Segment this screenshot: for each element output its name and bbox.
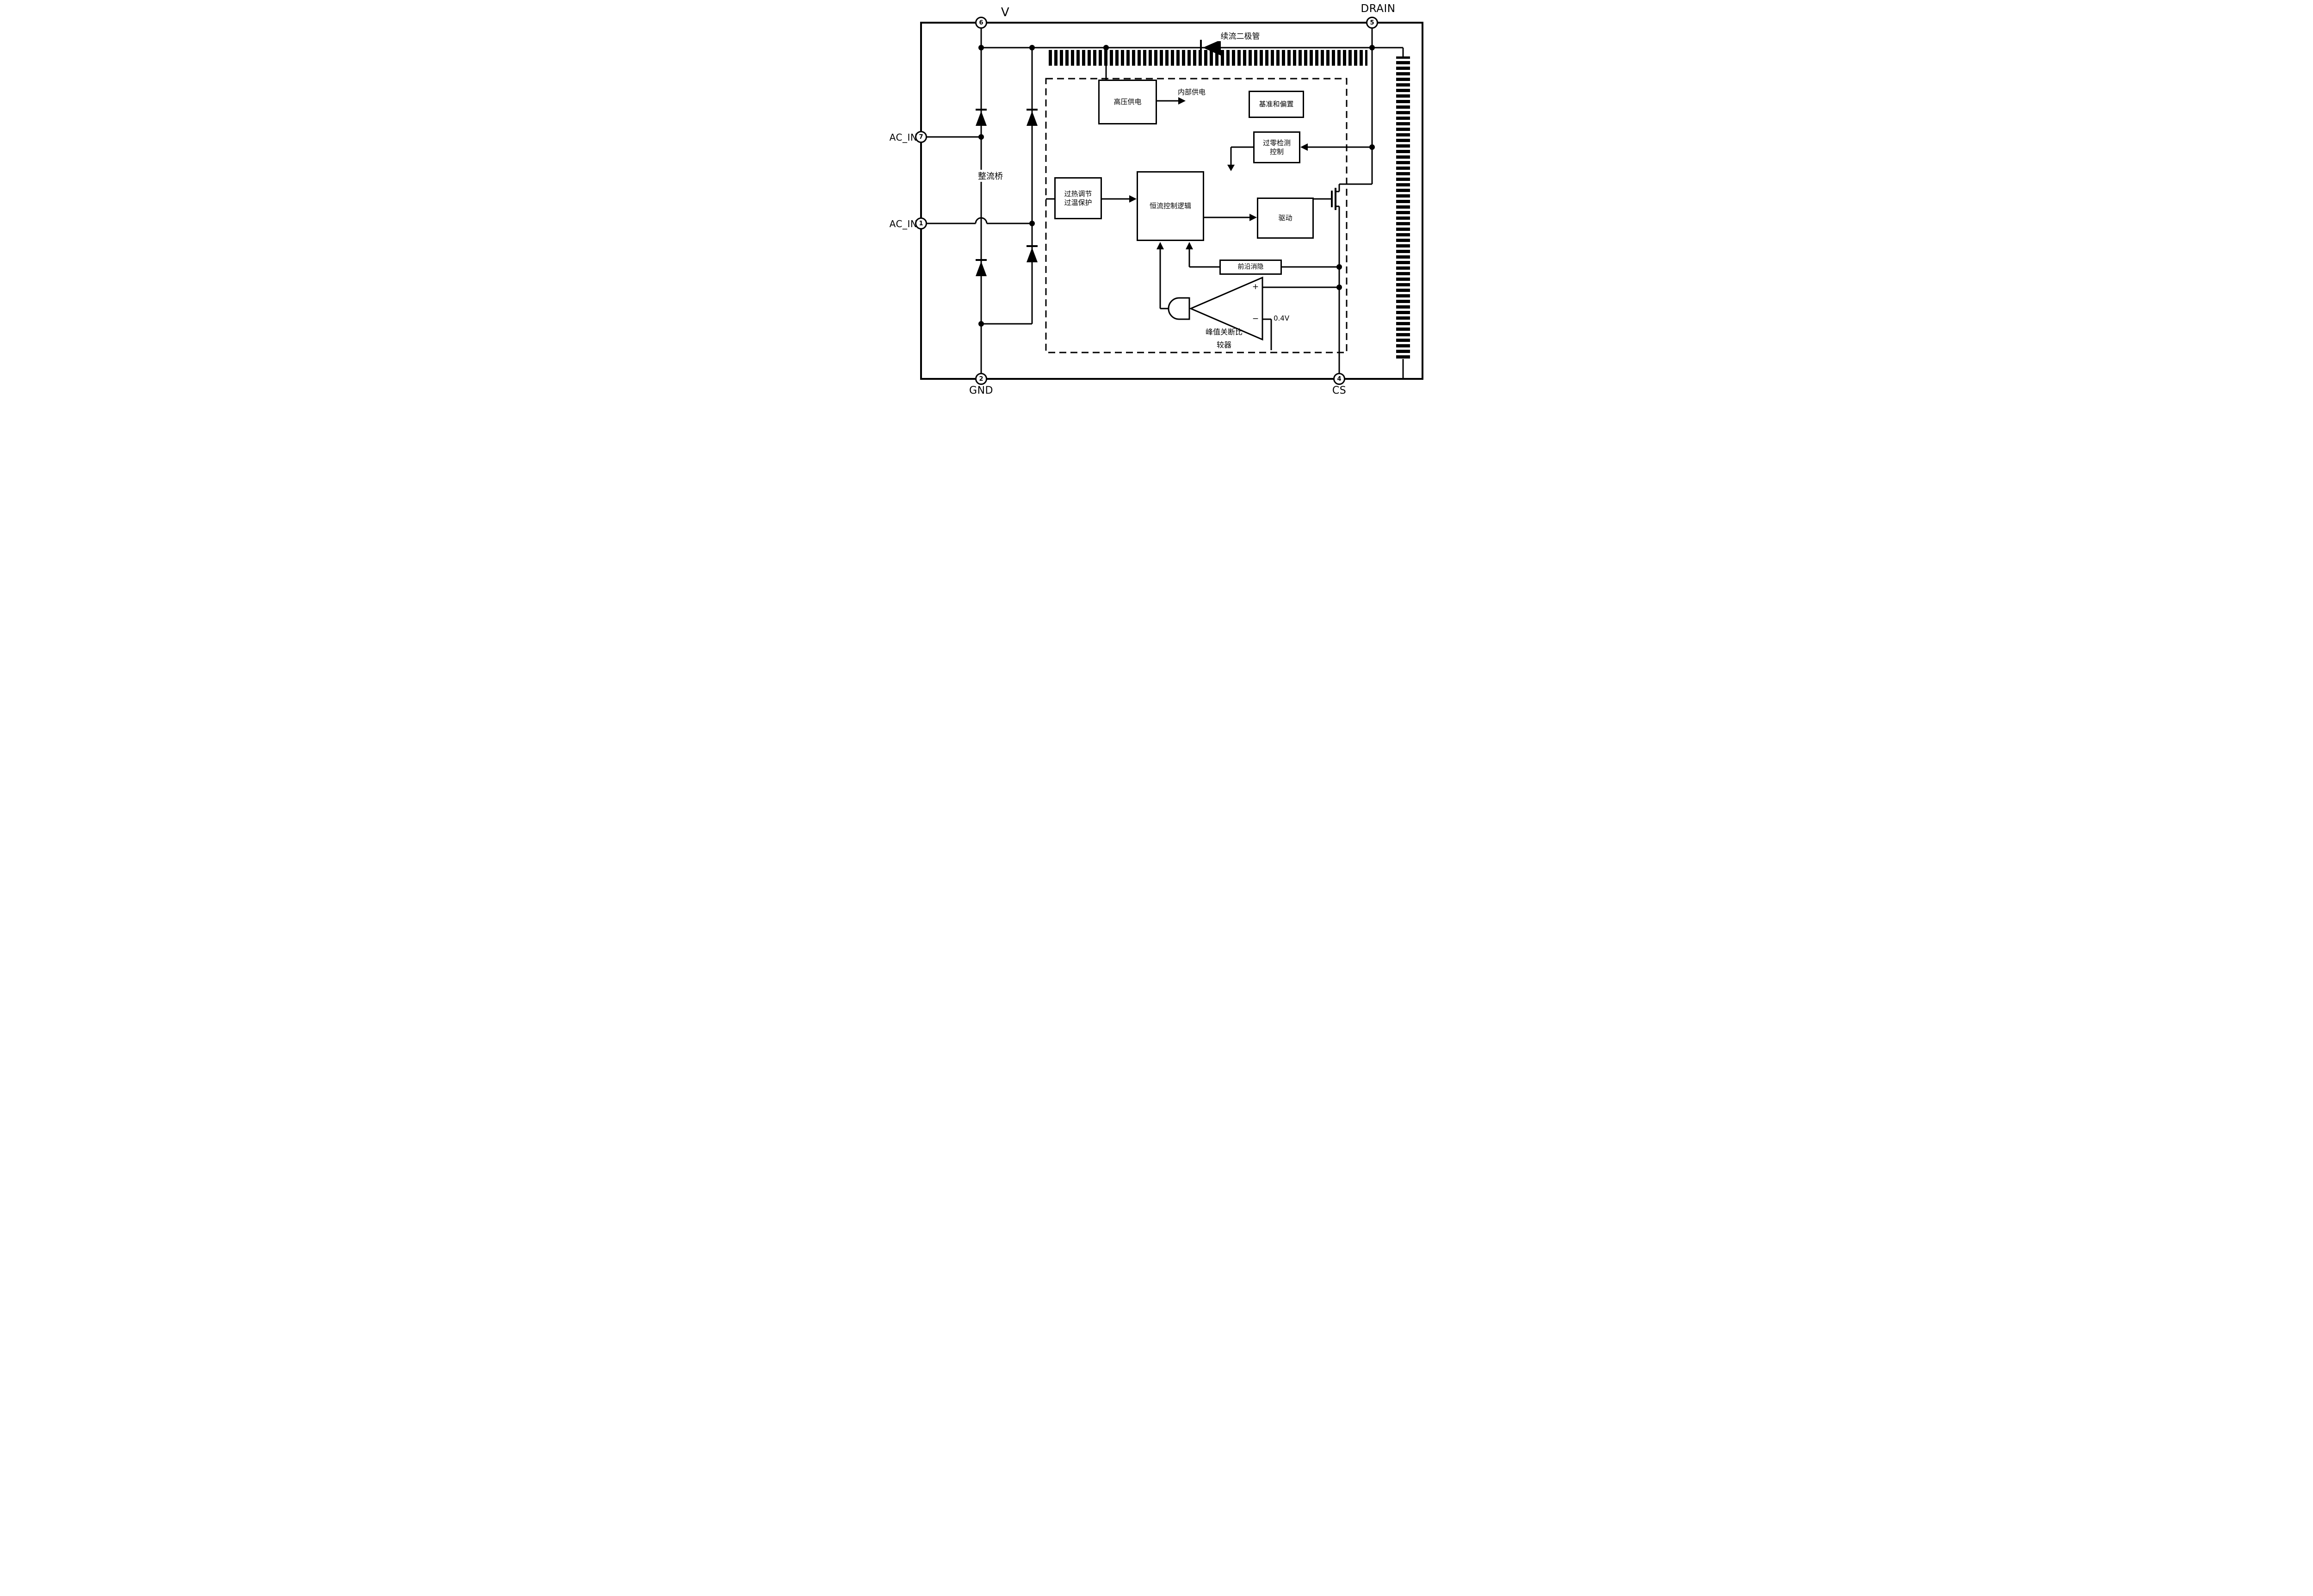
block-leading-edge-blanking: 前沿消隐 — [1219, 260, 1282, 275]
pin-cs: 4 — [1333, 373, 1345, 385]
comparator-label-line2: 较器 — [1200, 339, 1248, 350]
arrowhead — [1129, 195, 1137, 203]
pin-drain: 5 — [1366, 17, 1378, 29]
freewheel-diode-label: 续流二极管 — [1209, 30, 1272, 41]
bridge-diode-icon — [1027, 110, 1038, 126]
pin-label-ac-in-top: AC_IN — [888, 132, 919, 143]
arrowhead — [1156, 242, 1164, 249]
pin-gnd: 2 — [975, 373, 987, 385]
block-cc-control-logic: 恒流控制逻辑 — [1137, 171, 1204, 241]
block-label: 恒流控制逻辑 — [1150, 202, 1191, 210]
arrowhead — [1300, 143, 1308, 151]
mosfet-icon — [1332, 184, 1372, 210]
pin-label-cs: CS — [1323, 385, 1356, 396]
block-zero-cross-detect: 过零检测 控制 — [1253, 131, 1300, 163]
and-gate-icon — [1169, 298, 1189, 319]
pin-label-gnd: GND — [965, 385, 998, 396]
arrowhead — [1249, 214, 1257, 221]
pin-number: 6 — [979, 19, 983, 26]
pin-number: 2 — [979, 376, 983, 383]
pin-label-drain: DRAIN — [1350, 3, 1406, 15]
block-label: 基准和偏置 — [1259, 100, 1293, 109]
block-label: 过热调节 — [1064, 190, 1092, 198]
block-label: 高压供电 — [1113, 98, 1141, 106]
comparator-label-line1: 峰值关断比 — [1200, 326, 1248, 337]
rectifier-bridge-label: 整流桥 — [971, 170, 1010, 182]
block-thermal-protect: 过热调节 过温保护 — [1054, 177, 1102, 219]
arrowhead — [1186, 242, 1193, 249]
load-coil — [1396, 56, 1410, 360]
pin-number: 1 — [919, 220, 923, 227]
bridge-diode-icon — [976, 260, 987, 276]
inductor-coil — [1048, 50, 1367, 66]
bridge-diode-icon — [976, 110, 987, 126]
arrowhead — [1227, 165, 1235, 171]
internal-supply-label: 内部供电 — [1176, 87, 1207, 97]
pin-label-v: V — [996, 6, 1014, 19]
block-driver: 驱动 — [1257, 198, 1314, 239]
block-label: 控制 — [1270, 148, 1284, 156]
block-label: 过零检测 — [1263, 139, 1291, 148]
comparator-plus-sign: + — [1251, 282, 1260, 291]
pin-number: 4 — [1337, 376, 1341, 383]
block-hv-supply: 高压供电 — [1098, 80, 1157, 124]
reference-voltage-label: 0.4V — [1274, 314, 1296, 322]
pin-number: 7 — [919, 134, 923, 141]
comparator-minus-sign: − — [1251, 314, 1260, 323]
block-label: 过温保护 — [1064, 198, 1092, 207]
block-reference-bias: 基准和偏置 — [1249, 91, 1304, 118]
block-label: 驱动 — [1278, 214, 1292, 223]
block-diagram: 高压供电 基准和偏置 过零检测 控制 过热调节 过温保护 恒流控制逻辑 驱动 前… — [866, 0, 1447, 399]
pin-v: 6 — [975, 17, 987, 29]
block-label: 前沿消隐 — [1238, 263, 1264, 272]
arrowhead — [1178, 97, 1186, 105]
pin-label-ac-in-bottom: AC_IN — [888, 218, 919, 229]
pin-number: 5 — [1370, 19, 1374, 26]
bridge-diode-icon — [1027, 246, 1038, 262]
